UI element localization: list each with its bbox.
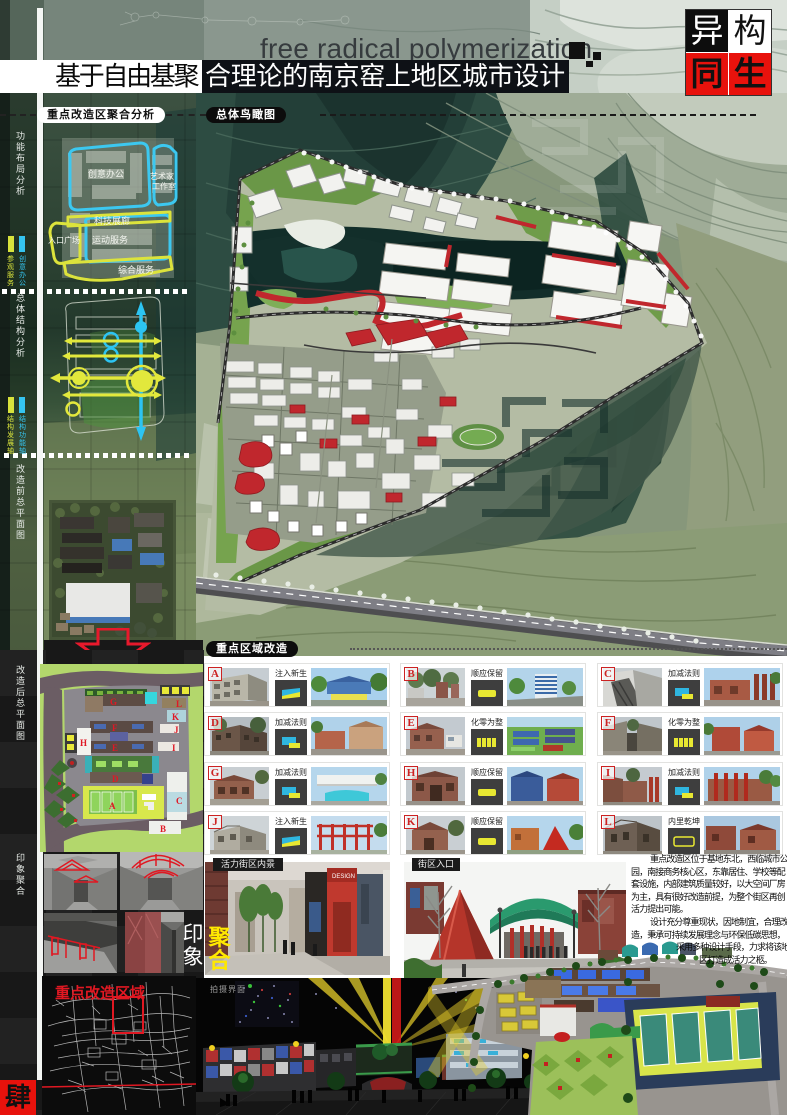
svg-text:C: C bbox=[176, 796, 183, 806]
svg-text:B: B bbox=[160, 824, 166, 834]
svg-text:H: H bbox=[80, 738, 87, 748]
svg-text:科技展廊: 科技展廊 bbox=[94, 215, 130, 226]
svg-text:综合服务: 综合服务 bbox=[118, 264, 154, 275]
svg-text:K: K bbox=[172, 712, 179, 722]
svg-text:E: E bbox=[112, 743, 118, 753]
svg-text:L: L bbox=[176, 699, 182, 709]
svg-text:运动服务: 运动服务 bbox=[92, 234, 128, 245]
svg-text:J: J bbox=[174, 725, 179, 735]
svg-text:艺术家: 艺术家 bbox=[150, 171, 174, 181]
svg-text:DESIGN: DESIGN bbox=[332, 874, 355, 880]
svg-text:D: D bbox=[112, 774, 119, 784]
svg-text:F: F bbox=[112, 723, 118, 733]
svg-text:A: A bbox=[109, 801, 116, 811]
svg-text:创意办公: 创意办公 bbox=[88, 168, 124, 179]
svg-text:G: G bbox=[110, 697, 117, 707]
svg-text:入口广场: 入口广场 bbox=[48, 235, 80, 245]
svg-text:工作室: 工作室 bbox=[152, 181, 176, 191]
svg-text:I: I bbox=[172, 743, 176, 753]
